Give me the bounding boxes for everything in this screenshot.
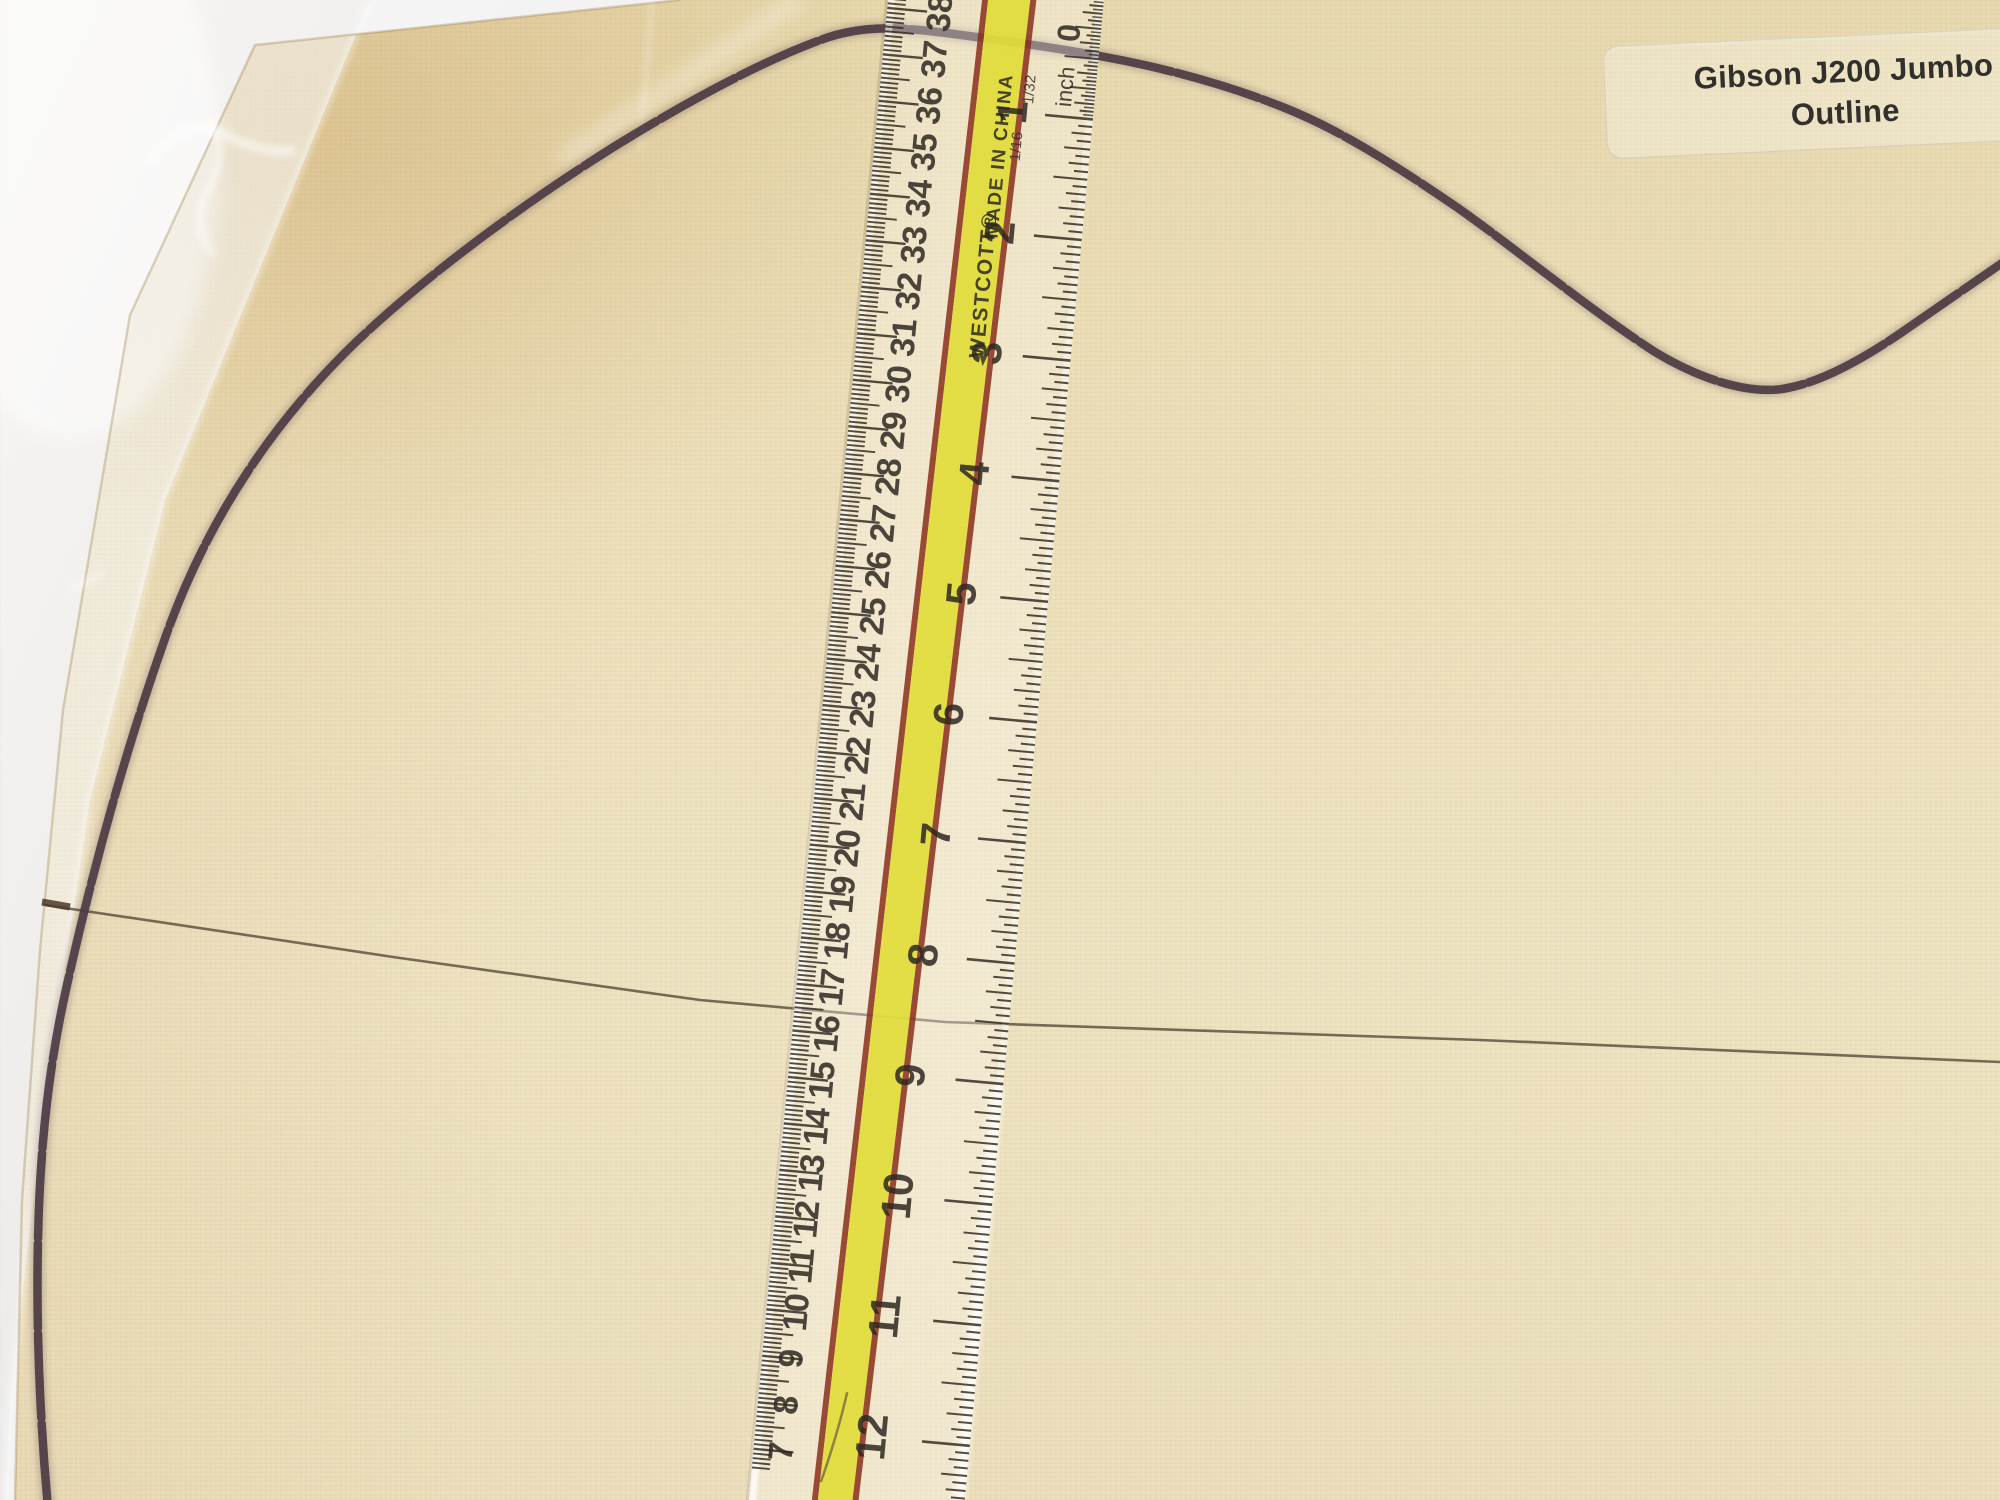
svg-text:37: 37 — [914, 39, 955, 80]
ruler: 0 inch 1/32 1/16 MADE IN CHINA WESTCOTT®… — [736, 0, 1104, 1500]
svg-text:17: 17 — [812, 967, 853, 1008]
svg-text:12: 12 — [786, 1199, 827, 1240]
svg-text:7: 7 — [911, 821, 960, 849]
svg-text:2: 2 — [975, 219, 1024, 247]
svg-text:35: 35 — [904, 131, 945, 172]
svg-text:10: 10 — [776, 1292, 817, 1333]
svg-text:5: 5 — [937, 580, 986, 608]
svg-text:38: 38 — [919, 0, 960, 33]
svg-text:10: 10 — [872, 1170, 923, 1221]
svg-text:8: 8 — [767, 1394, 807, 1416]
label-line2: Outline — [1790, 90, 1901, 136]
label-sticker: Gibson J200 Jumbo Outline — [1602, 24, 2000, 160]
svg-text:31: 31 — [883, 317, 924, 358]
svg-text:9: 9 — [885, 1062, 934, 1090]
svg-text:12: 12 — [846, 1411, 897, 1462]
photo-overlay: 0 inch 1/32 1/16 MADE IN CHINA WESTCOTT®… — [0, 0, 2000, 1500]
svg-text:24: 24 — [848, 642, 889, 683]
plastic-glare-streak — [560, 0, 800, 160]
svg-text:14: 14 — [796, 1106, 837, 1147]
ruler-zero-label: 0 — [1050, 22, 1087, 43]
svg-text:28: 28 — [868, 456, 909, 497]
centerline — [45, 905, 2000, 1062]
svg-text:32: 32 — [889, 271, 930, 312]
label-line1: Gibson J200 Jumbo — [1693, 44, 1994, 99]
svg-text:9: 9 — [772, 1347, 812, 1369]
svg-text:16: 16 — [807, 1013, 848, 1054]
svg-text:1: 1 — [988, 98, 1037, 126]
svg-text:6: 6 — [924, 700, 973, 728]
svg-text:20: 20 — [827, 828, 868, 869]
svg-text:11: 11 — [859, 1292, 910, 1341]
svg-text:29: 29 — [873, 410, 914, 451]
svg-text:7: 7 — [761, 1440, 801, 1462]
svg-text:25: 25 — [853, 595, 894, 636]
svg-text:33: 33 — [894, 224, 935, 265]
ruler-fraction-1-32: 1/32 — [1020, 74, 1040, 105]
photo-guitar-template: { "photo": { "label": { "line1": "Gibson… — [0, 0, 2000, 1500]
svg-text:26: 26 — [858, 549, 899, 590]
svg-text:15: 15 — [802, 1060, 843, 1101]
svg-text:18: 18 — [817, 920, 858, 961]
svg-text:23: 23 — [842, 688, 883, 729]
svg-text:19: 19 — [822, 874, 863, 915]
svg-text:8: 8 — [898, 941, 947, 969]
svg-text:27: 27 — [863, 503, 904, 544]
svg-text:21: 21 — [832, 781, 873, 822]
svg-text:36: 36 — [909, 85, 950, 126]
svg-text:13: 13 — [791, 1152, 832, 1193]
svg-text:30: 30 — [878, 363, 919, 404]
svg-text:11: 11 — [781, 1246, 822, 1285]
svg-text:22: 22 — [837, 735, 878, 776]
svg-text:34: 34 — [899, 178, 940, 219]
centerline-end-tick — [42, 902, 70, 907]
svg-text:3: 3 — [962, 339, 1011, 367]
